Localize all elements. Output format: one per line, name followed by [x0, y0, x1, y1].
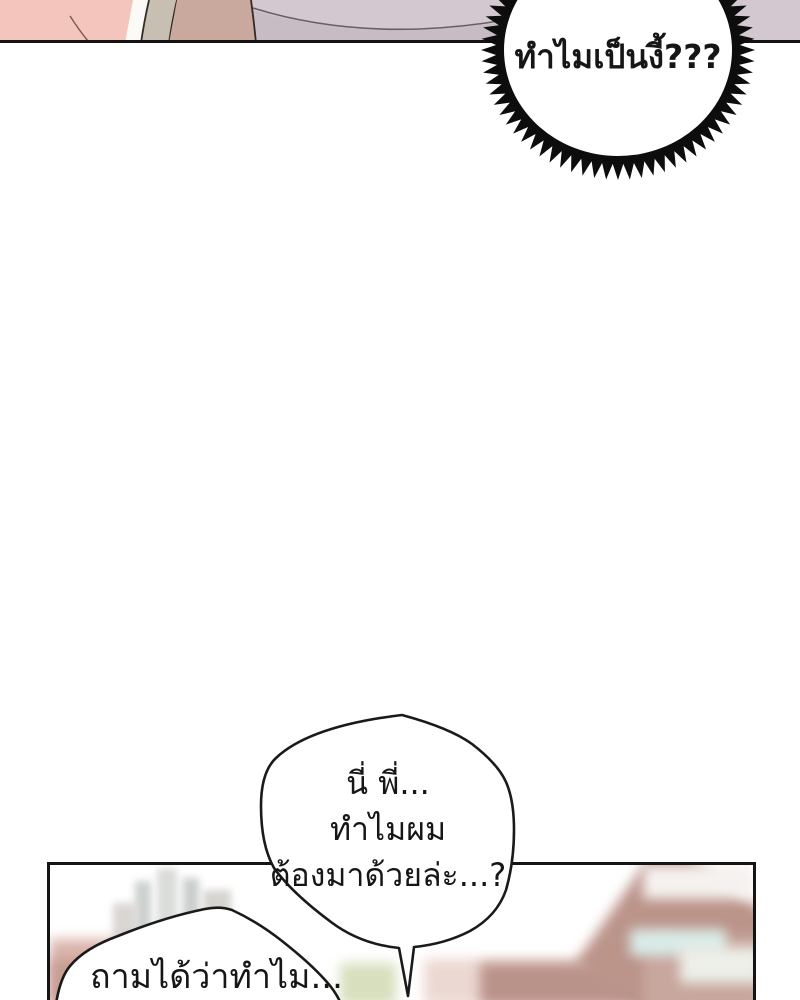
castle-tower-icon: [157, 868, 177, 944]
castle-tower-icon: [203, 890, 231, 944]
speech-line-2: ทำไมผม: [262, 806, 514, 852]
reply-bubble-text: ถามได้ว่าทำไม...: [90, 956, 334, 998]
speech-line-1: นี่ พี่...: [262, 760, 514, 806]
blurred-sky-corner: [643, 865, 753, 899]
blurred-wall: [680, 947, 756, 983]
shout-bubble-text: ทำไมเป็นงี้???: [498, 36, 738, 78]
speech-line-3: ต้องมาด้วยล่ะ...?: [262, 852, 514, 898]
blurred-tree: [340, 963, 396, 1000]
castle-tower-icon: [183, 878, 199, 944]
panel-border-left-segment: [0, 40, 494, 43]
skin-area: [0, 0, 133, 43]
panel-border-right-segment: [744, 40, 800, 43]
castle-tower-icon: [135, 881, 151, 943]
comic-page: ทำไมเป็นงี้??? นี่ พี่... ทำไมผม ต้องมาด…: [0, 0, 800, 1000]
hair-area: [169, 0, 256, 43]
speech-bubble-text: นี่ พี่... ทำไมผม ต้องมาด้วยล่ะ...?: [262, 760, 514, 898]
